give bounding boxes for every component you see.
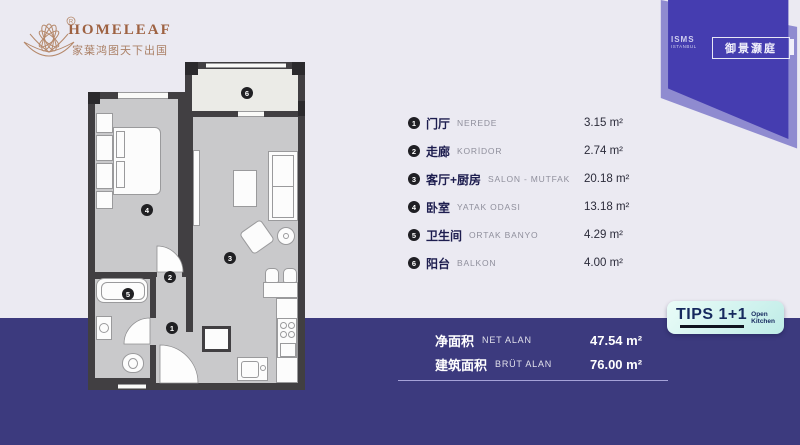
- door-arcs: [0, 0, 800, 445]
- plan-room-number-1: 1: [166, 322, 178, 334]
- plan-room-number-4: 4: [141, 204, 153, 216]
- flyer-canvas: R HOMELEAF 家葉鸿图天下出国 ISMS ISTANBUL 御景灏庭: [0, 0, 800, 445]
- plan-room-number-2: 2: [164, 271, 176, 283]
- plan-room-number-6: 6: [241, 87, 253, 99]
- plan-room-number-5: 5: [122, 288, 134, 300]
- plan-room-number-3: 3: [224, 252, 236, 264]
